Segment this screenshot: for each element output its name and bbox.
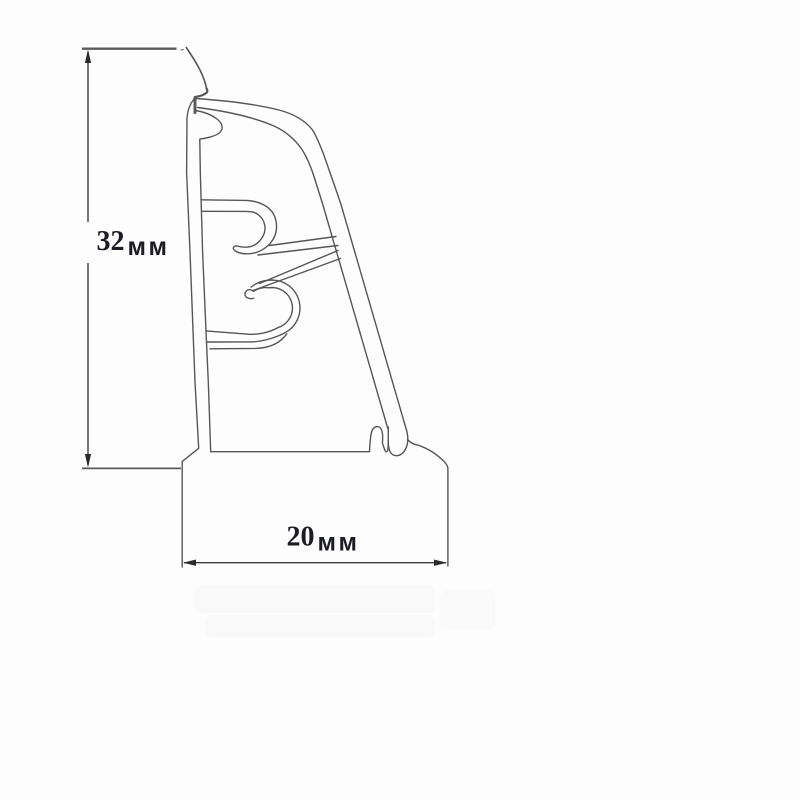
svg-text:мм: мм xyxy=(128,233,170,261)
svg-text:20: 20 xyxy=(287,521,315,552)
svg-text:мм: мм xyxy=(318,529,360,557)
svg-text:32: 32 xyxy=(97,226,125,257)
